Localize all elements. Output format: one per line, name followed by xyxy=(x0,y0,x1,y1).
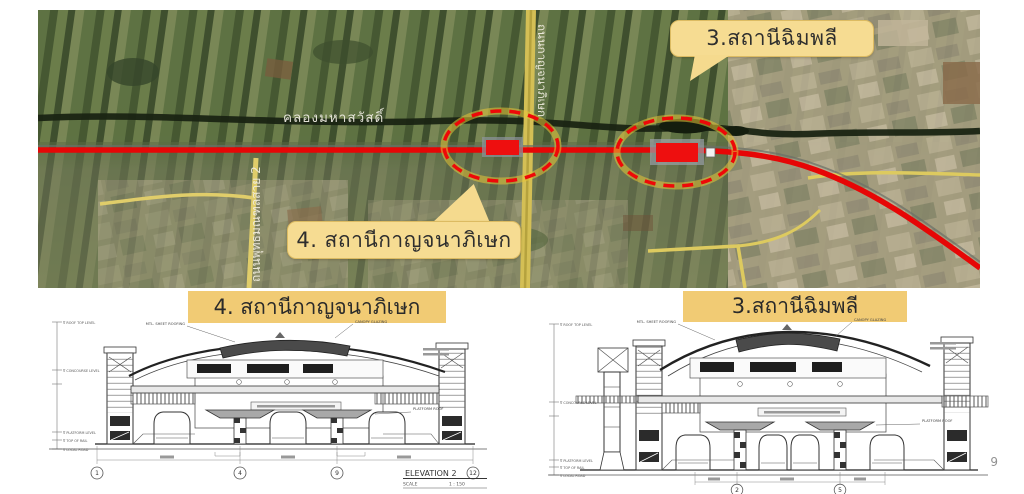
road-left-label: ถนนพุทธมณฑลสาย 2 xyxy=(249,166,264,282)
annotation-platform-roof: PLATFORM ROOF xyxy=(922,419,952,423)
level-label: ∇ ROOF TOP LEVEL xyxy=(62,321,95,325)
elevation-drawing-kanchanaphisek: ∇ ROOF TOP LEVEL ∇ CONCOURSE LEVEL ∇ PLA… xyxy=(35,312,495,494)
callout-chimphli: 3.สถานีฉิมพลี xyxy=(670,20,874,57)
annotation-platform-roof: PLATFORM ROOF xyxy=(413,407,443,411)
left-elevation-linework xyxy=(49,322,487,488)
canal-label: คลองมหาสวัสดิ์ xyxy=(283,107,385,126)
grid-bubble-5: 5 xyxy=(838,487,842,494)
station-4-block xyxy=(486,140,519,155)
level-label: ∇ PLATFORM LEVEL xyxy=(62,431,96,435)
annotation-roof: MTL. SHEET ROOFING xyxy=(637,320,676,324)
grid-bubble-4: 4 xyxy=(238,470,242,477)
grid-bubble-1: 1 xyxy=(95,470,99,477)
level-label: ∇ ROOF TOP LEVEL xyxy=(559,323,592,327)
annotation-roof: MTL. SHEET ROOFING xyxy=(146,322,185,326)
elevation-drawing-chimphli: ∇ ROOF TOP LEVEL ∇ CONCOURSE LEVEL ∇ PLA… xyxy=(540,312,990,494)
grid-bubble-2: 2 xyxy=(735,487,739,494)
grid-bubble-12: 12 xyxy=(469,470,477,477)
page-number: 9 xyxy=(990,455,998,469)
level-label: ∇ TOP OF RAIL xyxy=(559,466,584,470)
callout-chimphli-label: 3.สถานีฉิมพลี xyxy=(706,22,838,55)
station-3-block xyxy=(656,143,698,162)
callout-kanchanaphisek-label: 4. สถานีกาญจนาภิเษก xyxy=(296,224,511,257)
level-label: ∇ TOP OF RAIL xyxy=(62,439,87,443)
level-label: ∇ CONCOURSE LEVEL xyxy=(559,401,597,405)
right-elevation-linework xyxy=(548,322,988,494)
slide: คลองมหาสวัสดิ์ ถนนพุทธมณฑลสาย 2 ถนนกาญจน… xyxy=(0,0,1024,494)
level-label: ∇ PLATFORM LEVEL xyxy=(559,459,593,463)
elevation-scale-label: SCALE xyxy=(403,482,418,488)
level-label: ∇ LOCAL ROAD xyxy=(559,474,586,478)
level-label: ∇ CONCOURSE LEVEL xyxy=(62,369,100,373)
elevation-scale-value: 1 : 150 xyxy=(449,482,465,488)
road-center-label: ถนนกาญจนาภิเษก xyxy=(535,24,549,117)
map-poi-icon xyxy=(706,148,715,157)
callout-kanchanaphisek: 4. สถานีกาญจนาภิเษก xyxy=(287,221,521,259)
annotation-canopy: CANOPY GLAZING xyxy=(355,320,387,324)
annotation-canopy: CANOPY GLAZING xyxy=(854,318,886,322)
grid-bubble-9: 9 xyxy=(335,470,339,477)
level-label: ∇ LOCAL ROAD xyxy=(62,448,89,452)
elevation-caption: ELEVATION 2 xyxy=(405,469,457,478)
